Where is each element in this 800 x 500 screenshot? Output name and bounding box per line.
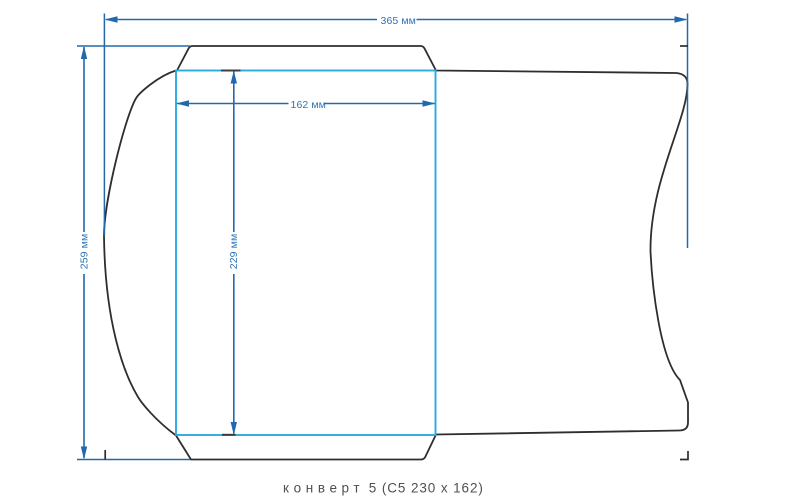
svg-text:259 мм: 259 мм	[78, 234, 90, 269]
svg-text:162 мм: 162 мм	[291, 99, 326, 111]
svg-text:конверт 5 (C5 230 x 162): конверт 5 (C5 230 x 162)	[283, 481, 484, 496]
svg-text:365 мм: 365 мм	[381, 15, 416, 27]
svg-text:229 мм: 229 мм	[228, 234, 240, 269]
